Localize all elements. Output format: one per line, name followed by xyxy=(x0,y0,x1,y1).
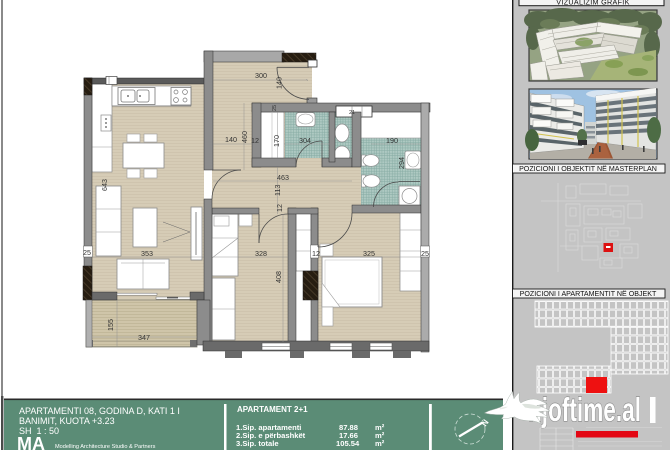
svg-text:155: 155 xyxy=(106,319,115,331)
svg-text:25: 25 xyxy=(421,249,429,258)
svg-text:POZICIONI I OBJEKTIT NË MASTER: POZICIONI I OBJEKTIT NË MASTERPLAN xyxy=(519,165,657,173)
svg-text:BANIMIT, KUOTA +3.23: BANIMIT, KUOTA +3.23 xyxy=(19,416,115,426)
svg-text:12: 12 xyxy=(275,204,284,212)
svg-text:21: 21 xyxy=(349,110,355,116)
svg-text:VIZUALIZIM GRAFIK: VIZUALIZIM GRAFIK xyxy=(556,0,629,7)
svg-text:300: 300 xyxy=(255,71,267,80)
svg-text:12: 12 xyxy=(312,249,320,258)
svg-text:APARTAMENTI 08, GODINA D, KATI: APARTAMENTI 08, GODINA D, KATI 1 I xyxy=(19,406,180,416)
svg-text:643: 643 xyxy=(100,179,109,191)
svg-text:m²: m² xyxy=(375,439,385,448)
svg-text:POZICIONI I APARTAMENTIT NË OB: POZICIONI I APARTAMENTIT NË OBJEKT xyxy=(520,290,657,298)
svg-text:140: 140 xyxy=(275,77,284,89)
svg-text:325: 325 xyxy=(363,249,375,258)
svg-text:3.Sip. totale: 3.Sip. totale xyxy=(236,439,279,448)
svg-text:353: 353 xyxy=(141,249,153,258)
svg-text:25: 25 xyxy=(83,248,91,257)
svg-text:113: 113 xyxy=(273,185,282,196)
svg-text:347: 347 xyxy=(138,333,150,342)
svg-text:460: 460 xyxy=(240,131,249,143)
svg-text:140: 140 xyxy=(225,135,237,144)
svg-text:170: 170 xyxy=(272,135,281,147)
svg-text:190: 190 xyxy=(386,136,398,145)
svg-text:MA: MA xyxy=(17,434,45,450)
svg-text:APARTAMENT 2+1: APARTAMENT 2+1 xyxy=(237,405,308,414)
svg-text:Modelling Architecture Studio: Modelling Architecture Studio & Partners xyxy=(55,444,156,450)
svg-text:105.54: 105.54 xyxy=(336,439,360,448)
svg-text:328: 328 xyxy=(255,249,267,258)
svg-text:408: 408 xyxy=(274,271,283,283)
svg-text:25: 25 xyxy=(272,105,278,111)
svg-text:294: 294 xyxy=(397,157,406,169)
svg-text:304: 304 xyxy=(299,136,311,145)
svg-text:463: 463 xyxy=(277,173,289,182)
svg-text:12: 12 xyxy=(251,136,259,145)
